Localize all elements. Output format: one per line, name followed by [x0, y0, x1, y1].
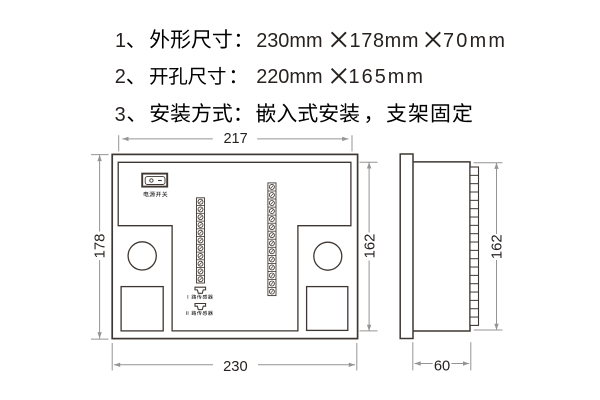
svg-text:178: 178 — [93, 234, 109, 259]
svg-text:220mm: 220mm — [256, 66, 322, 88]
svg-text:60: 60 — [434, 359, 450, 375]
svg-text:162: 162 — [490, 234, 506, 259]
svg-text:178mm: 178mm — [350, 30, 419, 52]
svg-text:3: 3 — [115, 104, 126, 126]
svg-text:162: 162 — [363, 234, 379, 259]
svg-text:1: 1 — [115, 30, 126, 52]
svg-text:70mm: 70mm — [443, 30, 505, 52]
svg-text:230mm: 230mm — [256, 30, 322, 52]
svg-text:230: 230 — [223, 359, 248, 375]
svg-text:2: 2 — [115, 66, 126, 88]
svg-text:217: 217 — [223, 131, 247, 147]
